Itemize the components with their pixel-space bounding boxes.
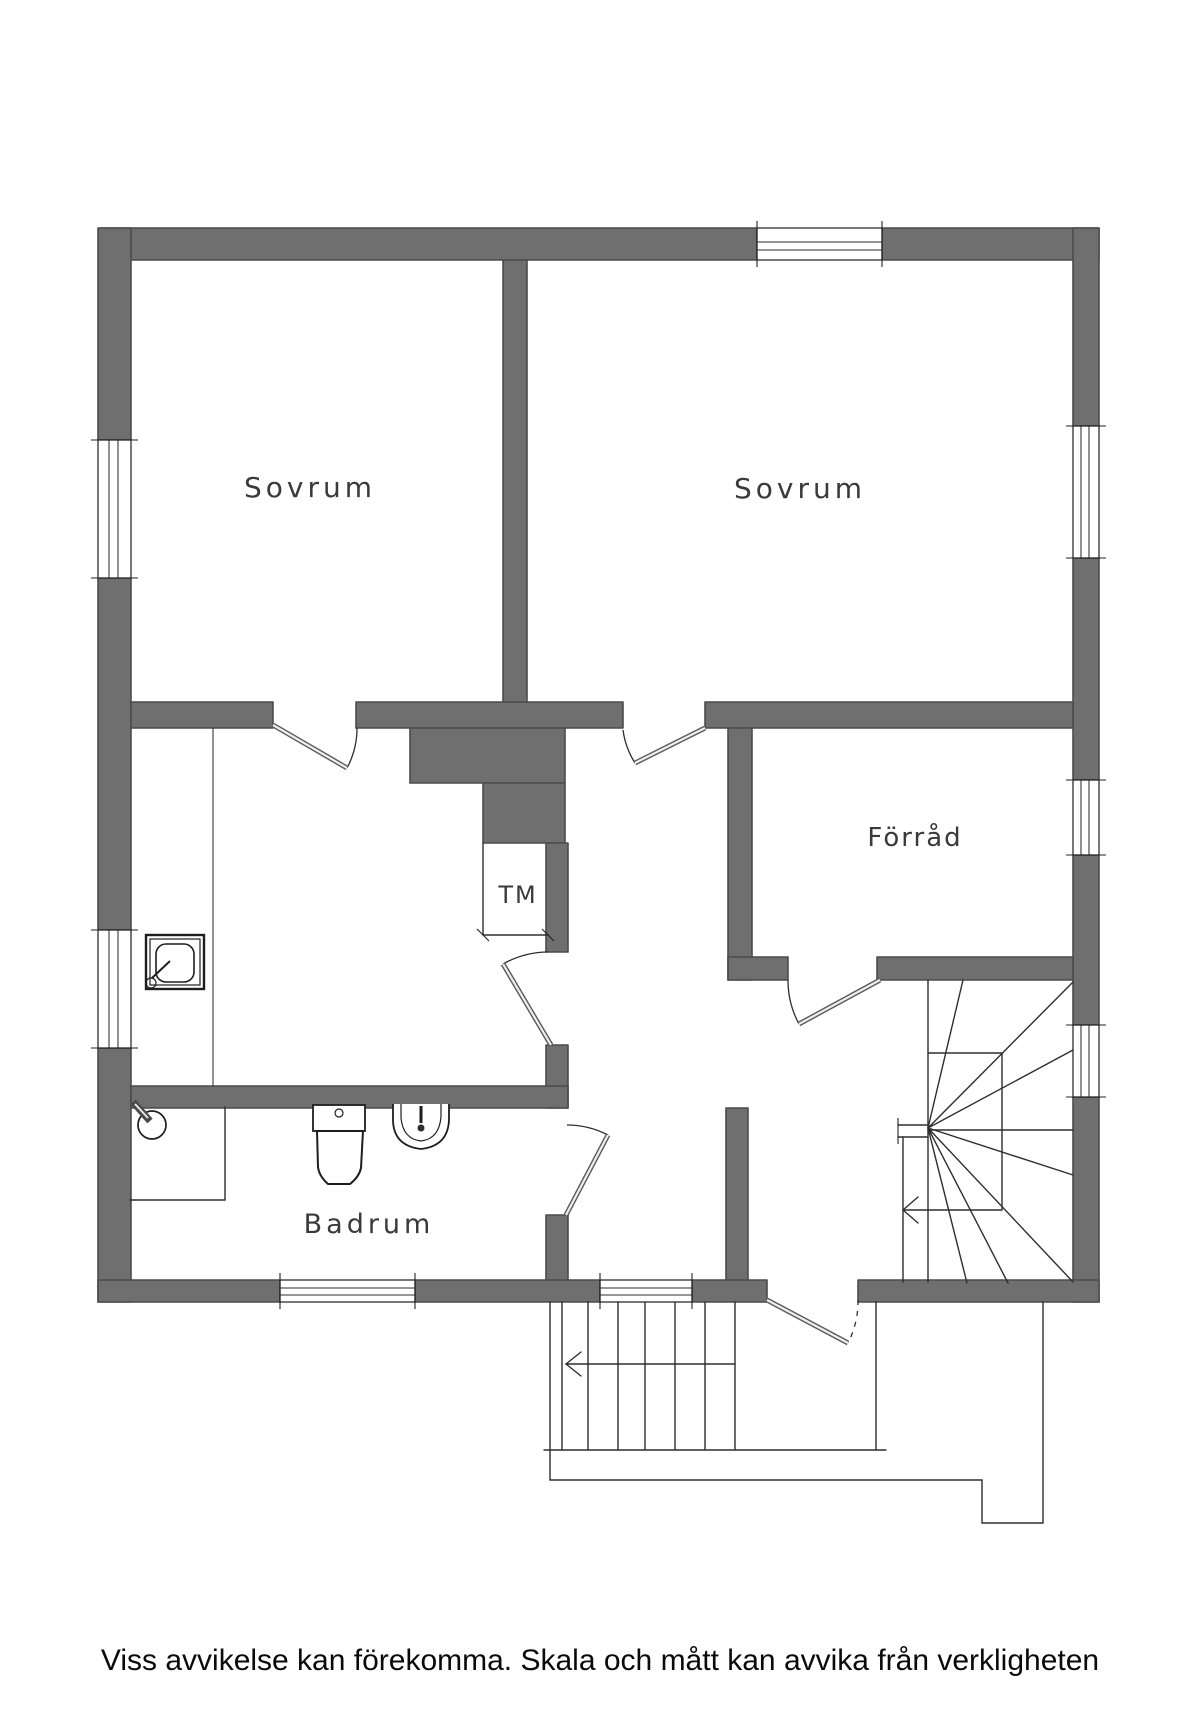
- doors: [273, 725, 880, 1343]
- window-top-sovrum-right: [757, 221, 882, 267]
- wall-right-lower: [1073, 1097, 1099, 1302]
- wall-bottom-c: [692, 1280, 767, 1302]
- windows: [91, 221, 1106, 1309]
- bathroom-fixtures: [130, 1102, 449, 1200]
- door-sovrum-left: [273, 725, 357, 768]
- label-sovrum-left: Sovrum: [244, 471, 376, 504]
- floor-plan-page: Sovrum Sovrum Förråd Badrum TM Viss avvi…: [0, 0, 1200, 1715]
- sink-icon: [393, 1104, 449, 1149]
- window-right-stair: [1066, 1025, 1106, 1097]
- floor-plan-drawing: Sovrum Sovrum Förråd Badrum TM: [0, 0, 1200, 1715]
- window-left-sovrum: [91, 440, 138, 578]
- window-bottom-badrum: [280, 1273, 415, 1309]
- wall-left-middle: [98, 578, 131, 930]
- window-right-sovrum: [1066, 426, 1106, 558]
- wall-forrad-west: [728, 728, 752, 980]
- wall-top-left-segment: [100, 228, 757, 260]
- wall-bedroom-divider: [503, 260, 527, 706]
- interior-winder-staircase: [898, 980, 1073, 1283]
- steps-direction-arrow: [566, 1352, 735, 1376]
- wall-midband-b: [356, 702, 623, 728]
- label-tm: TM: [497, 881, 537, 909]
- wall-bottom-b: [415, 1280, 600, 1302]
- wall-midband-c: [705, 702, 1073, 728]
- window-right-forrad: [1066, 780, 1106, 855]
- exterior-entrance-steps: [544, 1302, 1043, 1523]
- wall-bathroom-east: [546, 1215, 568, 1280]
- exterior-walls: [98, 228, 1099, 1302]
- wall-core-chunk-lower: [483, 783, 565, 843]
- door-badrum: [566, 1125, 608, 1215]
- label-badrum: Badrum: [304, 1209, 435, 1240]
- wall-bottom-a: [98, 1280, 280, 1302]
- label-forrad: Förråd: [867, 822, 962, 853]
- wall-right-mid1: [1073, 558, 1099, 780]
- wall-forrad-south-stub: [728, 957, 788, 980]
- window-left-laundry: [91, 930, 138, 1048]
- wall-left-lower: [98, 1048, 131, 1302]
- wall-right-upper: [1073, 228, 1099, 426]
- interior-walls: [131, 260, 1073, 1280]
- winder-treads-fan: [928, 980, 1073, 1283]
- wall-stair-west: [726, 1108, 748, 1280]
- shower-corner: [130, 1102, 225, 1200]
- wall-midband-a: [131, 702, 273, 728]
- door-entrance: [767, 1300, 858, 1343]
- window-bottom-hall: [600, 1273, 692, 1309]
- wall-core-chunk-upper: [410, 728, 565, 783]
- wall-top-right-segment: [882, 228, 1099, 260]
- wall-bottom-d: [858, 1280, 1099, 1302]
- porch-outline: [550, 1302, 1043, 1523]
- wall-right-mid2: [1073, 855, 1099, 1025]
- tap-icon: [418, 1125, 425, 1132]
- door-stair-hall: [788, 980, 880, 1024]
- door-laundry: [503, 952, 551, 1045]
- label-sovrum-right: Sovrum: [734, 472, 866, 505]
- door-sovrum-right: [623, 728, 705, 763]
- disclaimer-text: Viss avvikelse kan förekomma. Skala och …: [0, 1644, 1200, 1678]
- shower-tray-fixture: [146, 935, 204, 989]
- toilet-icon: [313, 1105, 365, 1184]
- wall-left-upper: [98, 228, 131, 440]
- wall-forrad-south-main: [877, 957, 1073, 980]
